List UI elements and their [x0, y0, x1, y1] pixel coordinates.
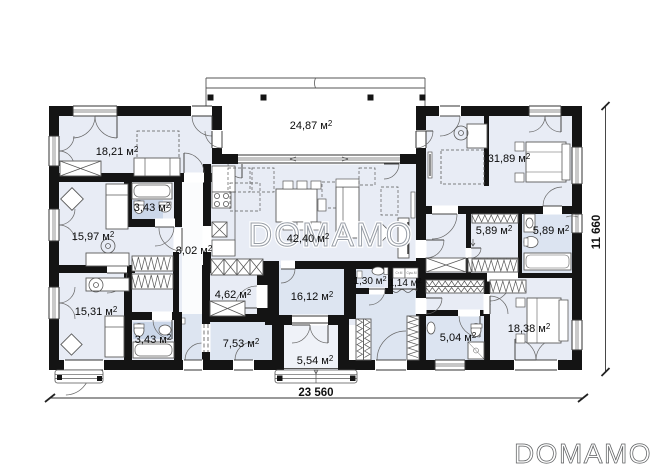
svg-text:5,04 м2: 5,04 м2: [440, 331, 476, 344]
svg-text:16,12 м2: 16,12 м2: [291, 290, 334, 303]
svg-text:DOMAMO: DOMAMO: [514, 438, 652, 469]
svg-text:4,62 м2: 4,62 м2: [215, 288, 251, 301]
svg-text:11 660: 11 660: [591, 215, 603, 250]
svg-text:1,30 м2: 1,30 м2: [353, 274, 386, 287]
svg-text:15,97 м2: 15,97 м2: [72, 230, 115, 243]
svg-text:31,89 м2: 31,89 м2: [488, 152, 531, 165]
svg-text:DOMAMO: DOMAMO: [248, 216, 413, 253]
svg-text:18,38 м2: 18,38 м2: [508, 322, 551, 335]
svg-text:Суш.М: Суш.М: [407, 271, 417, 275]
svg-text:18,21 м2: 18,21 м2: [96, 145, 139, 158]
svg-text:3,43 м2: 3,43 м2: [135, 333, 171, 346]
svg-text:8,02 м2: 8,02 м2: [176, 244, 212, 257]
svg-text:1,14 м2: 1,14 м2: [388, 276, 421, 289]
svg-text:5,54 м2: 5,54 м2: [297, 354, 333, 367]
svg-text:5,89 м2: 5,89 м2: [476, 224, 512, 237]
svg-text:Ст.М: Ст.М: [396, 271, 403, 275]
svg-text:23 560: 23 560: [298, 387, 333, 399]
svg-text:3,43 м2: 3,43 м2: [134, 201, 170, 214]
svg-text:5,89 м2: 5,89 м2: [533, 224, 569, 237]
svg-text:7,53 м2: 7,53 м2: [223, 337, 259, 350]
svg-text:15,31 м2: 15,31 м2: [75, 305, 118, 318]
svg-text:24,87 м2: 24,87 м2: [290, 119, 333, 132]
svg-text:42,40 м2: 42,40 м2: [287, 232, 330, 245]
